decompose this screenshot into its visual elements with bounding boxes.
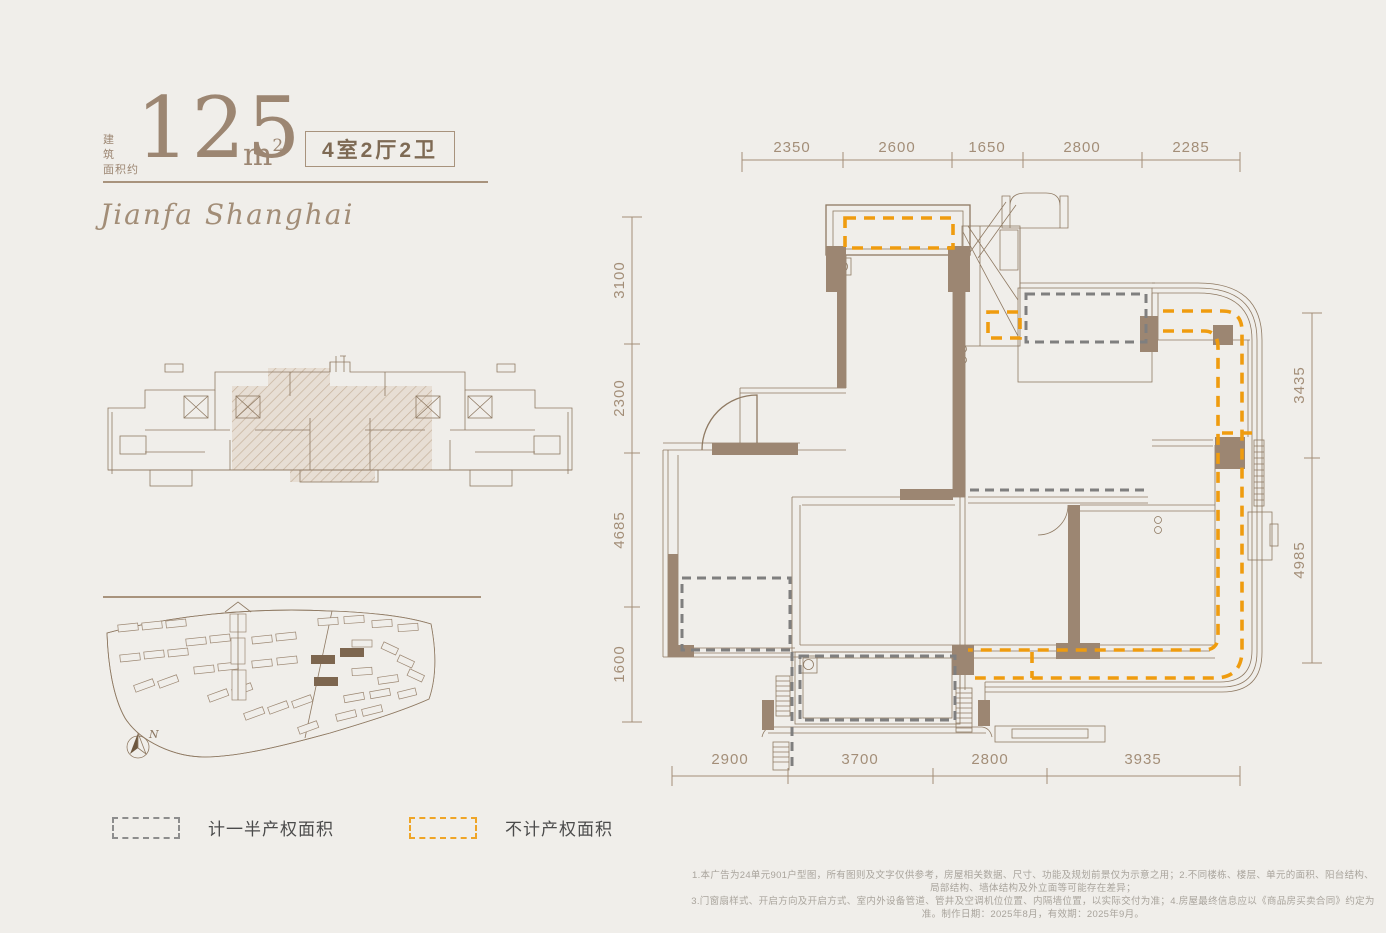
dim-bottom-3: 2800 — [971, 751, 1008, 768]
legend-label-excluded: 不计产权面积 — [505, 815, 613, 840]
dim-left-2: 2300 — [611, 379, 628, 416]
layout-badge: 4室2厅2卫 — [305, 131, 455, 167]
building-key-plan — [95, 350, 590, 520]
dim-right-1: 3435 — [1291, 366, 1308, 403]
disclaimer-line2: 3.门窗扇样式、开启方向及开启方式、室内外设备管道、管井及空调机位位置、内隔墙位… — [688, 895, 1378, 921]
highlighted-building — [314, 677, 338, 686]
excluded-areas — [845, 218, 1256, 678]
dim-left-4: 1600 — [611, 645, 628, 682]
brand-script: Jianfa Shanghai — [100, 198, 354, 231]
bedroom-door-arc — [1038, 505, 1068, 535]
legend-swatch-excluded — [409, 817, 477, 839]
area-label-line2: 面积约 — [103, 164, 139, 176]
legend-label-half-property: 计一半产权面积 — [208, 815, 334, 840]
dim-top-4: 2800 — [1063, 139, 1100, 156]
ac-platform — [1248, 440, 1278, 560]
north-label: N — [148, 728, 159, 741]
legend-swatch-half-property — [112, 817, 180, 839]
floor-plan-walls — [663, 193, 1278, 770]
disclaimer: 1.本广告为24单元901户型图，所有图则及文字仅供参考，房屋相关数据、尺寸、功… — [688, 869, 1378, 921]
key-plan-highlight — [232, 386, 432, 470]
north-arrow-icon: N — [127, 728, 159, 758]
floorplan-poster: 建 筑 面积约 125 m2 4室2厅2卫 Jianfa Shanghai — [0, 0, 1386, 933]
disclaimer-line1: 1.本广告为24单元901户型图，所有图则及文字仅供参考，房屋相关数据、尺寸、功… — [688, 869, 1378, 895]
dim-bottom-1: 2900 — [711, 751, 748, 768]
entry-door-arc — [702, 395, 757, 450]
dim-top-3: 1650 — [968, 139, 1005, 156]
dim-top-2: 2600 — [878, 139, 915, 156]
site-plan: N — [90, 598, 475, 783]
highlighted-building — [340, 648, 364, 657]
dim-left-3: 4685 — [611, 511, 628, 548]
dim-left-1: 3100 — [611, 261, 628, 298]
area-unit-sup: 2 — [272, 136, 283, 156]
dim-bottom-2: 3700 — [841, 751, 878, 768]
dim-top-1: 2350 — [773, 139, 810, 156]
area-unit-base: m — [243, 137, 272, 173]
header-divider — [103, 181, 488, 183]
legend: 计一半产权面积 不计产权面积 — [112, 815, 613, 840]
dim-right-2: 4985 — [1291, 541, 1308, 578]
dim-bottom-4: 3935 — [1124, 751, 1161, 768]
dim-top-5: 2285 — [1172, 139, 1209, 156]
area-unit: m2 — [243, 136, 283, 173]
unit-floor-plan: 2350 2600 1650 2800 2285 3100 2300 4685 … — [600, 130, 1386, 810]
key-plan-outline — [108, 356, 572, 486]
highlighted-building — [311, 655, 335, 664]
